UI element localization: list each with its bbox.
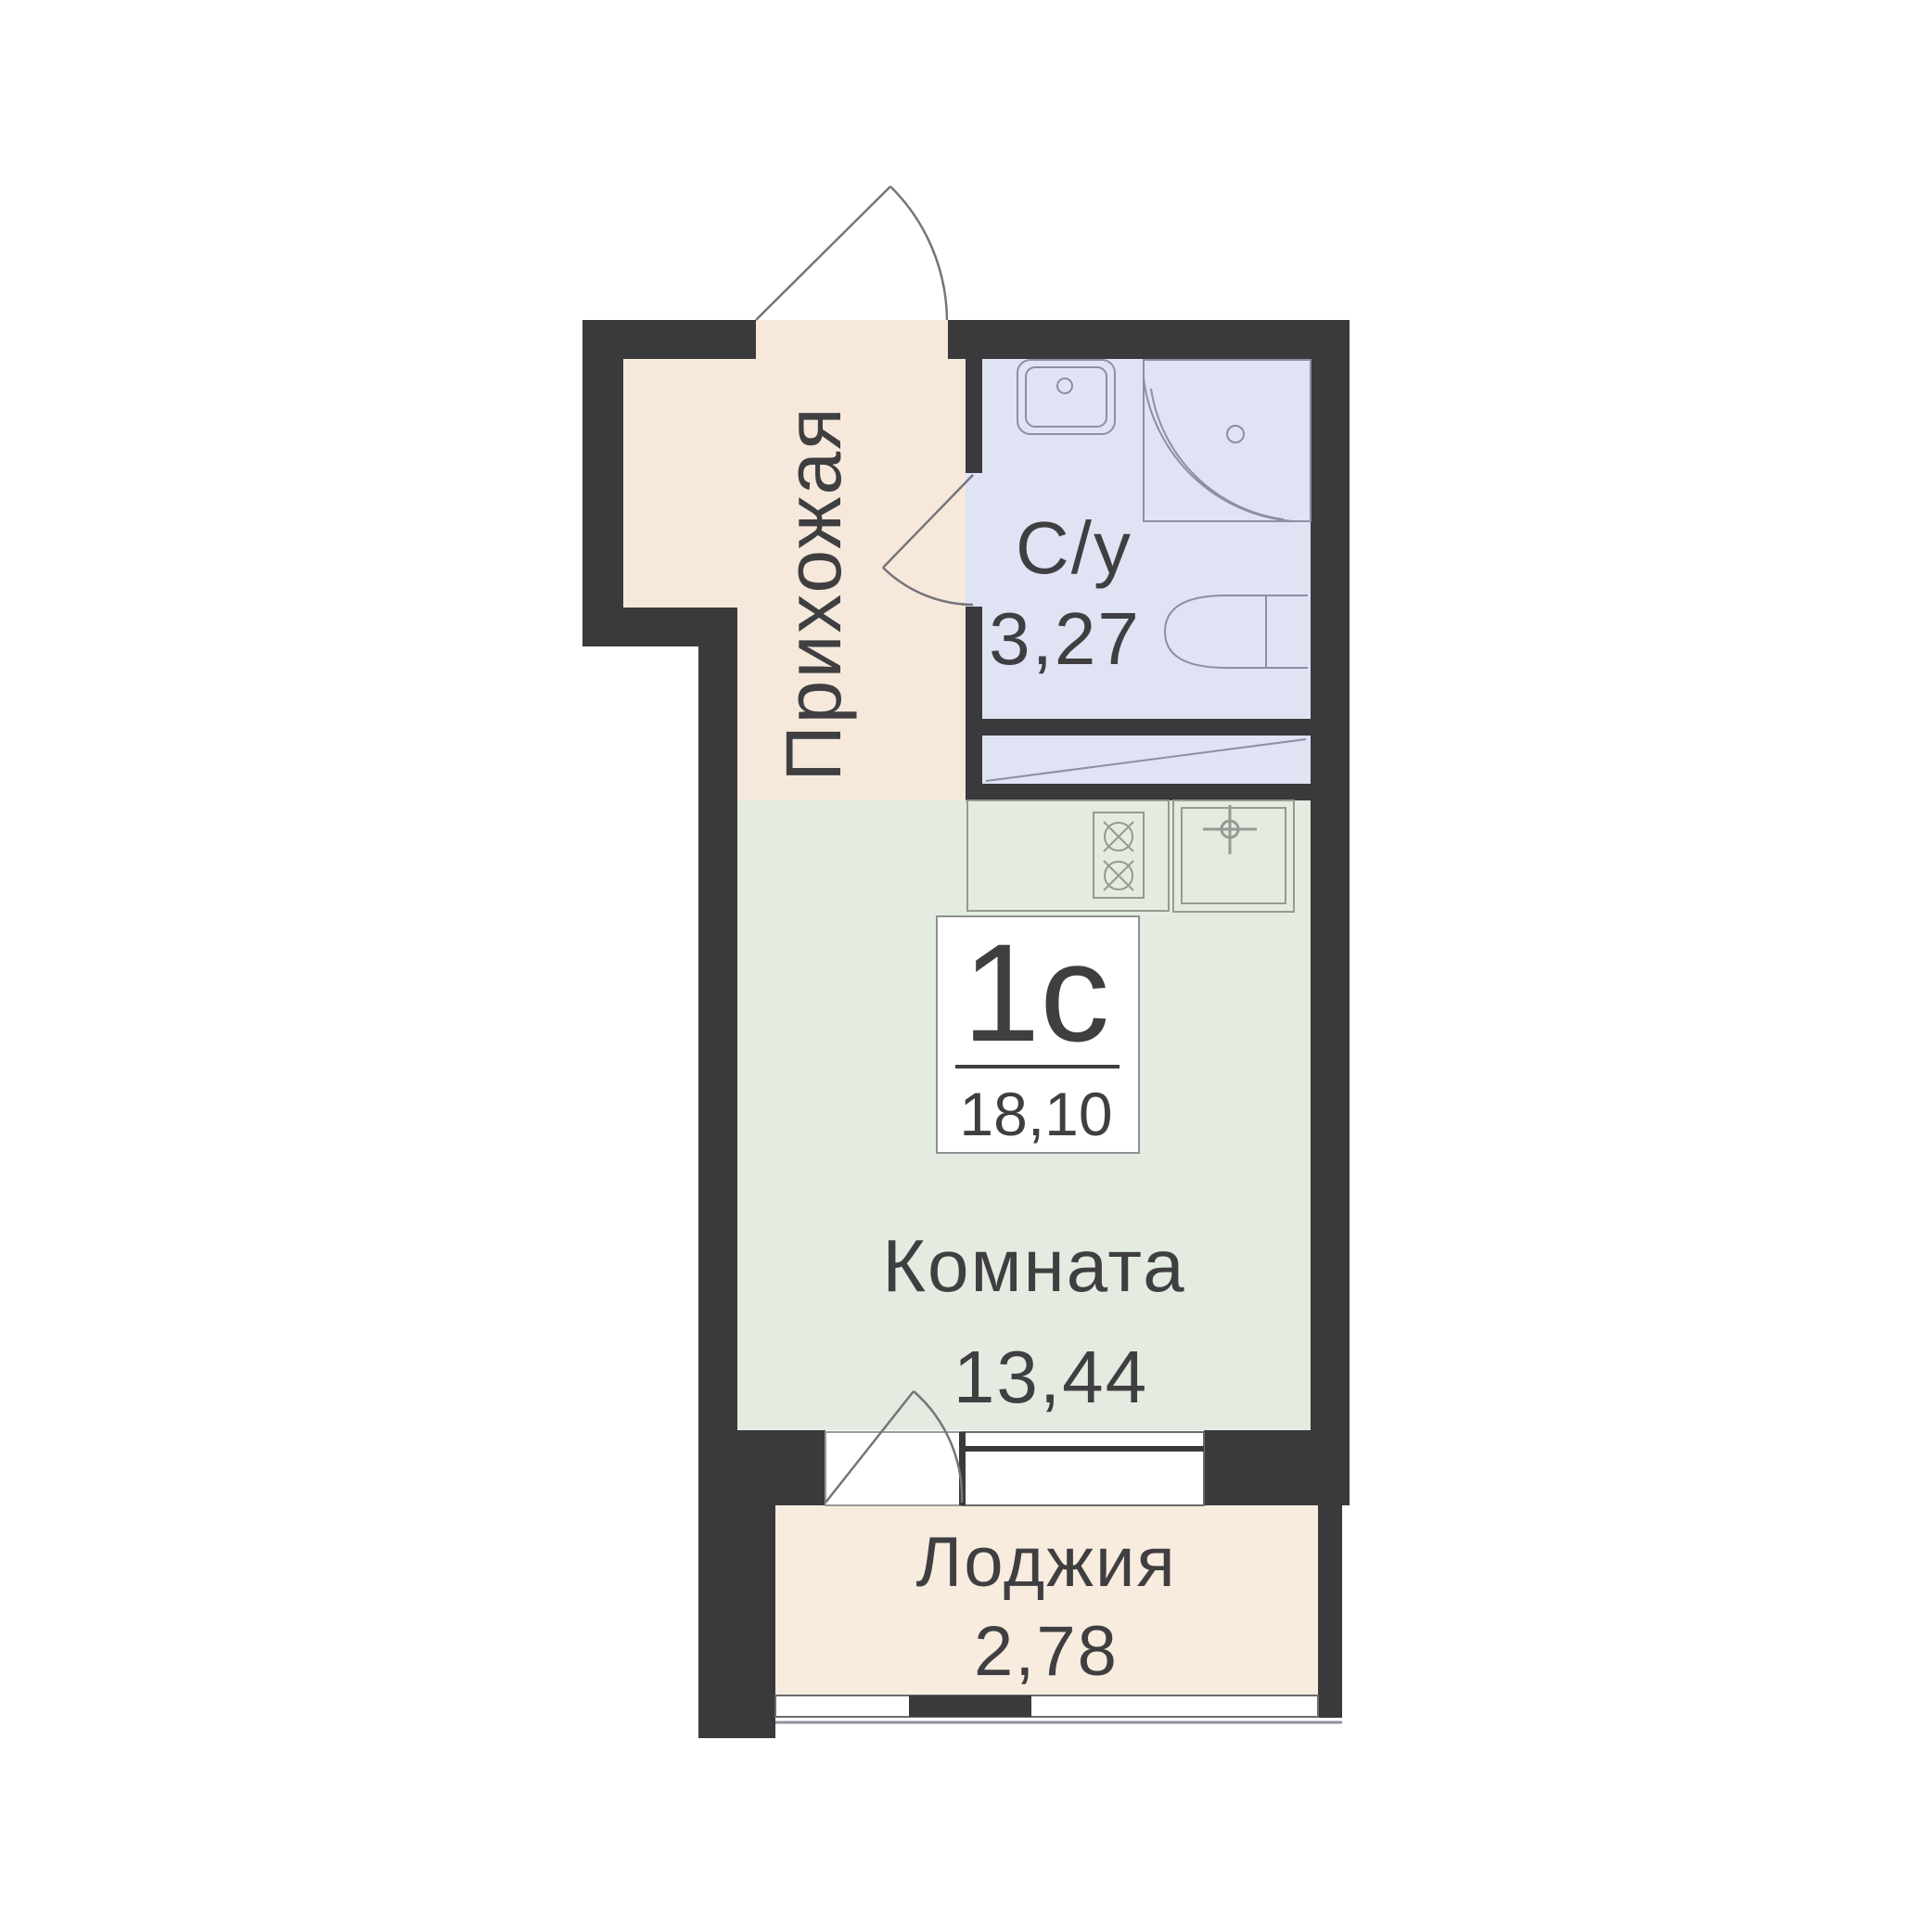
room-openings — [825, 1432, 1204, 1505]
wall-left-lower — [698, 608, 737, 1430]
loggia-area: 2,78 — [974, 1612, 1119, 1691]
wall-shaft-bottom — [966, 784, 1311, 800]
wall-top-right — [948, 320, 1350, 359]
wall-left-upper — [582, 320, 623, 646]
window-frame-line — [962, 1446, 1204, 1452]
wall-partition-upper — [966, 359, 982, 473]
balcony-door-opening — [825, 1432, 962, 1505]
loggia-glazing — [775, 1695, 1342, 1722]
entry-door-arc — [756, 186, 947, 320]
unit-type-label: 1с — [963, 915, 1109, 1070]
bathroom-area: 3,27 — [989, 597, 1141, 680]
unit-total-area: 18,10 — [959, 1080, 1112, 1148]
wall-right — [1311, 320, 1350, 1430]
wall-loggia-right — [1318, 1505, 1342, 1718]
wall-partition-lower — [966, 607, 982, 800]
wall-room-bottom-left — [737, 1430, 825, 1505]
bathroom-label: С/у — [1016, 506, 1132, 589]
hallway-label: Прихожая — [770, 405, 857, 781]
floor-plan: 1с 18,10 Прихожая С/у 3,27 Комната 13,44… — [0, 0, 1932, 1932]
window — [962, 1432, 1204, 1505]
floor-plan-svg: 1с 18,10 Прихожая С/у 3,27 Комната 13,44… — [0, 0, 1932, 1932]
loggia-glazing-pier — [909, 1695, 1031, 1717]
living-room-label: Комната — [882, 1224, 1185, 1307]
wall-room-bottom-right — [1204, 1430, 1350, 1505]
wall-bathroom-bottom — [966, 719, 1311, 736]
unit-info-box: 1с 18,10 — [937, 915, 1139, 1153]
living-room-area: 13,44 — [953, 1336, 1148, 1418]
loggia-label: Лоджия — [915, 1523, 1176, 1602]
